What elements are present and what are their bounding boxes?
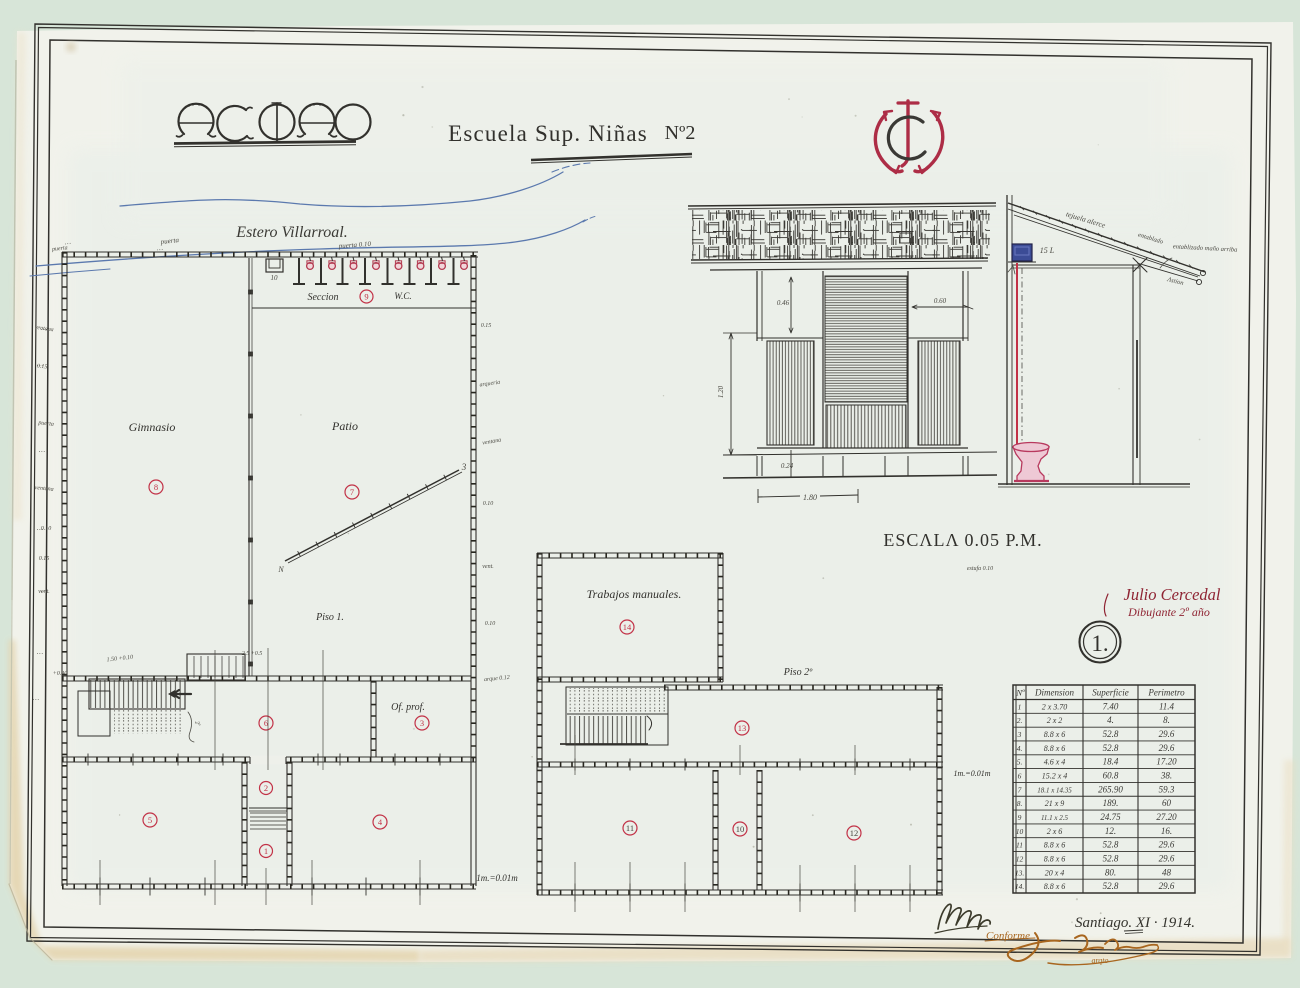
svg-text:W.C.: W.C.: [394, 291, 411, 301]
svg-text:60.8: 60.8: [1103, 771, 1119, 781]
svg-text:52.8: 52.8: [1103, 729, 1119, 739]
svg-text:2 x 3.70: 2 x 3.70: [1042, 702, 1068, 711]
svg-text:estufa 0.10: estufa 0.10: [967, 565, 993, 572]
svg-text:48: 48: [1162, 867, 1172, 877]
svg-text:6: 6: [1018, 772, 1022, 781]
svg-text:9: 9: [364, 291, 368, 301]
svg-text:80.: 80.: [1105, 867, 1116, 877]
svg-text:18.1 x 14.35: 18.1 x 14.35: [1037, 786, 1072, 794]
svg-text:21 x 9: 21 x 9: [1045, 799, 1065, 808]
svg-text:189.: 189.: [1103, 798, 1119, 808]
svg-text:2.: 2.: [1017, 716, 1023, 725]
svg-text:16.: 16.: [1161, 826, 1172, 836]
svg-text:vent.: vent.: [482, 564, 494, 570]
svg-text:18.4: 18.4: [1103, 757, 1119, 767]
svg-text:11: 11: [1016, 841, 1023, 850]
svg-text:3: 3: [461, 462, 467, 472]
svg-text:2: 2: [264, 783, 268, 793]
svg-text:59.3: 59.3: [1159, 784, 1175, 794]
svg-text:7: 7: [1018, 785, 1022, 794]
svg-text:3: 3: [1017, 730, 1022, 739]
svg-text:6: 6: [264, 718, 268, 728]
svg-text:Piso 2º: Piso 2º: [783, 667, 813, 678]
svg-text:2 x 2: 2 x 2: [1047, 716, 1063, 725]
svg-text:2 x 6: 2 x 6: [1047, 827, 1063, 836]
svg-text:ESCΛLΛ 0.05 P.M.: ESCΛLΛ 0.05 P.M.: [883, 530, 1042, 550]
svg-text:0.10: 0.10: [483, 501, 494, 507]
svg-text:8.8 x 6: 8.8 x 6: [1044, 744, 1066, 753]
svg-text:+0.40: +0.40: [53, 670, 68, 677]
svg-text:8.: 8.: [1163, 715, 1170, 725]
svg-text:8.8 x 6: 8.8 x 6: [1044, 882, 1066, 891]
svg-text:15 L: 15 L: [1040, 246, 1055, 255]
svg-text:…: …: [37, 648, 43, 656]
svg-text:8.8 x 6: 8.8 x 6: [1044, 841, 1066, 850]
svg-text:5: 5: [148, 815, 152, 825]
svg-text:10: 10: [1016, 827, 1024, 836]
svg-text:1: 1: [264, 846, 268, 856]
svg-text:7.40: 7.40: [1103, 701, 1119, 711]
svg-text:1.80: 1.80: [803, 493, 817, 502]
svg-text:Trabajos manuales.: Trabajos manuales.: [587, 587, 682, 601]
svg-text:Estero Villarroal.: Estero Villarroal.: [235, 224, 347, 241]
svg-text:4.: 4.: [1017, 744, 1023, 753]
svg-text:52.8: 52.8: [1103, 743, 1119, 753]
svg-text:52.8: 52.8: [1103, 840, 1119, 850]
svg-text:0.10: 0.10: [485, 621, 496, 627]
svg-text:Of. prof.: Of. prof.: [391, 702, 425, 713]
svg-text:3: 3: [420, 718, 424, 728]
svg-text:Santiago. XI · 1914.: Santiago. XI · 1914.: [1075, 915, 1195, 931]
svg-text:1m.=0.01m: 1m.=0.01m: [476, 873, 518, 883]
svg-text:12: 12: [850, 828, 859, 838]
svg-text:12: 12: [1016, 854, 1024, 863]
svg-text:12.: 12.: [1105, 826, 1116, 836]
svg-text:8.8 x 6: 8.8 x 6: [1044, 730, 1066, 739]
svg-text:10: 10: [736, 824, 745, 834]
svg-text:Superficie: Superficie: [1092, 688, 1129, 698]
svg-text:15.2 x 4: 15.2 x 4: [1042, 772, 1068, 781]
svg-text:38.: 38.: [1160, 771, 1172, 781]
svg-text:29.6: 29.6: [1159, 881, 1175, 891]
svg-text:4.6 x 4: 4.6 x 4: [1044, 758, 1066, 767]
svg-text:…: …: [39, 446, 45, 454]
svg-text:0.15: 0.15: [481, 323, 492, 329]
svg-text:11: 11: [626, 823, 634, 833]
svg-text:0.60: 0.60: [934, 297, 947, 305]
svg-text:0.46: 0.46: [777, 299, 790, 307]
svg-text:8.: 8.: [1017, 799, 1023, 808]
svg-text:1m.=0.01m: 1m.=0.01m: [954, 769, 991, 778]
svg-text:20 x 4: 20 x 4: [1045, 868, 1065, 877]
svg-text:0.15: 0.15: [39, 556, 50, 562]
svg-text:24.75: 24.75: [1100, 812, 1121, 822]
svg-text:arqto: arqto: [1091, 956, 1108, 965]
svg-text:29.6: 29.6: [1159, 840, 1175, 850]
svg-text:0.10: 0.10: [41, 526, 52, 532]
svg-text:Patio: Patio: [331, 419, 358, 433]
svg-text:2.5 +0.5: 2.5 +0.5: [242, 651, 263, 657]
svg-text:5.: 5.: [1017, 758, 1023, 767]
svg-text:8.8 x 6: 8.8 x 6: [1044, 854, 1066, 863]
svg-text:29.6: 29.6: [1159, 729, 1175, 739]
svg-text:29.6: 29.6: [1159, 853, 1175, 863]
svg-text:…: …: [33, 694, 39, 702]
svg-text:Seccion: Seccion: [307, 292, 338, 303]
svg-text:Julio Cercedal: Julio Cercedal: [1124, 585, 1221, 604]
svg-text:17.20: 17.20: [1156, 757, 1177, 767]
svg-text:52.8: 52.8: [1103, 853, 1119, 863]
svg-text:29.6: 29.6: [1159, 743, 1175, 753]
svg-text:Nº2: Nº2: [665, 122, 696, 144]
svg-text:10: 10: [271, 274, 279, 282]
svg-text:Nº: Nº: [1015, 688, 1025, 698]
svg-text:1: 1: [1018, 702, 1022, 711]
svg-text:14: 14: [623, 622, 632, 632]
svg-text:vent.: vent.: [38, 589, 50, 595]
svg-text:Perimetro: Perimetro: [1147, 688, 1185, 698]
svg-text:1.: 1.: [1091, 631, 1108, 656]
svg-text:60: 60: [1162, 798, 1172, 808]
svg-text:8: 8: [154, 482, 158, 492]
svg-text:Piso 1.: Piso 1.: [315, 612, 344, 623]
svg-text:Dibujante 2º año: Dibujante 2º año: [1127, 605, 1210, 619]
svg-text:11.4: 11.4: [1159, 701, 1175, 711]
svg-text:14.: 14.: [1015, 882, 1025, 891]
svg-text:27.20: 27.20: [1156, 812, 1177, 822]
svg-text:9: 9: [1018, 813, 1022, 822]
svg-text:0.24: 0.24: [781, 462, 794, 470]
svg-text:13.: 13.: [1015, 868, 1025, 877]
svg-text:265.90: 265.90: [1098, 784, 1123, 794]
svg-text:1.20: 1.20: [717, 385, 725, 398]
svg-text:Escuela Sup. Niñas: Escuela Sup. Niñas: [448, 121, 648, 146]
svg-text:13: 13: [738, 723, 747, 733]
svg-text:11.1 x 2.5: 11.1 x 2.5: [1041, 814, 1069, 822]
svg-text:4.: 4.: [1107, 715, 1114, 725]
svg-text:Gimnasio: Gimnasio: [129, 420, 176, 434]
svg-text:Dimension: Dimension: [1034, 688, 1074, 698]
svg-text:N: N: [277, 565, 284, 574]
svg-text:52.8: 52.8: [1103, 881, 1119, 891]
svg-text:0.15: 0.15: [37, 364, 48, 371]
svg-text:7: 7: [350, 487, 354, 497]
